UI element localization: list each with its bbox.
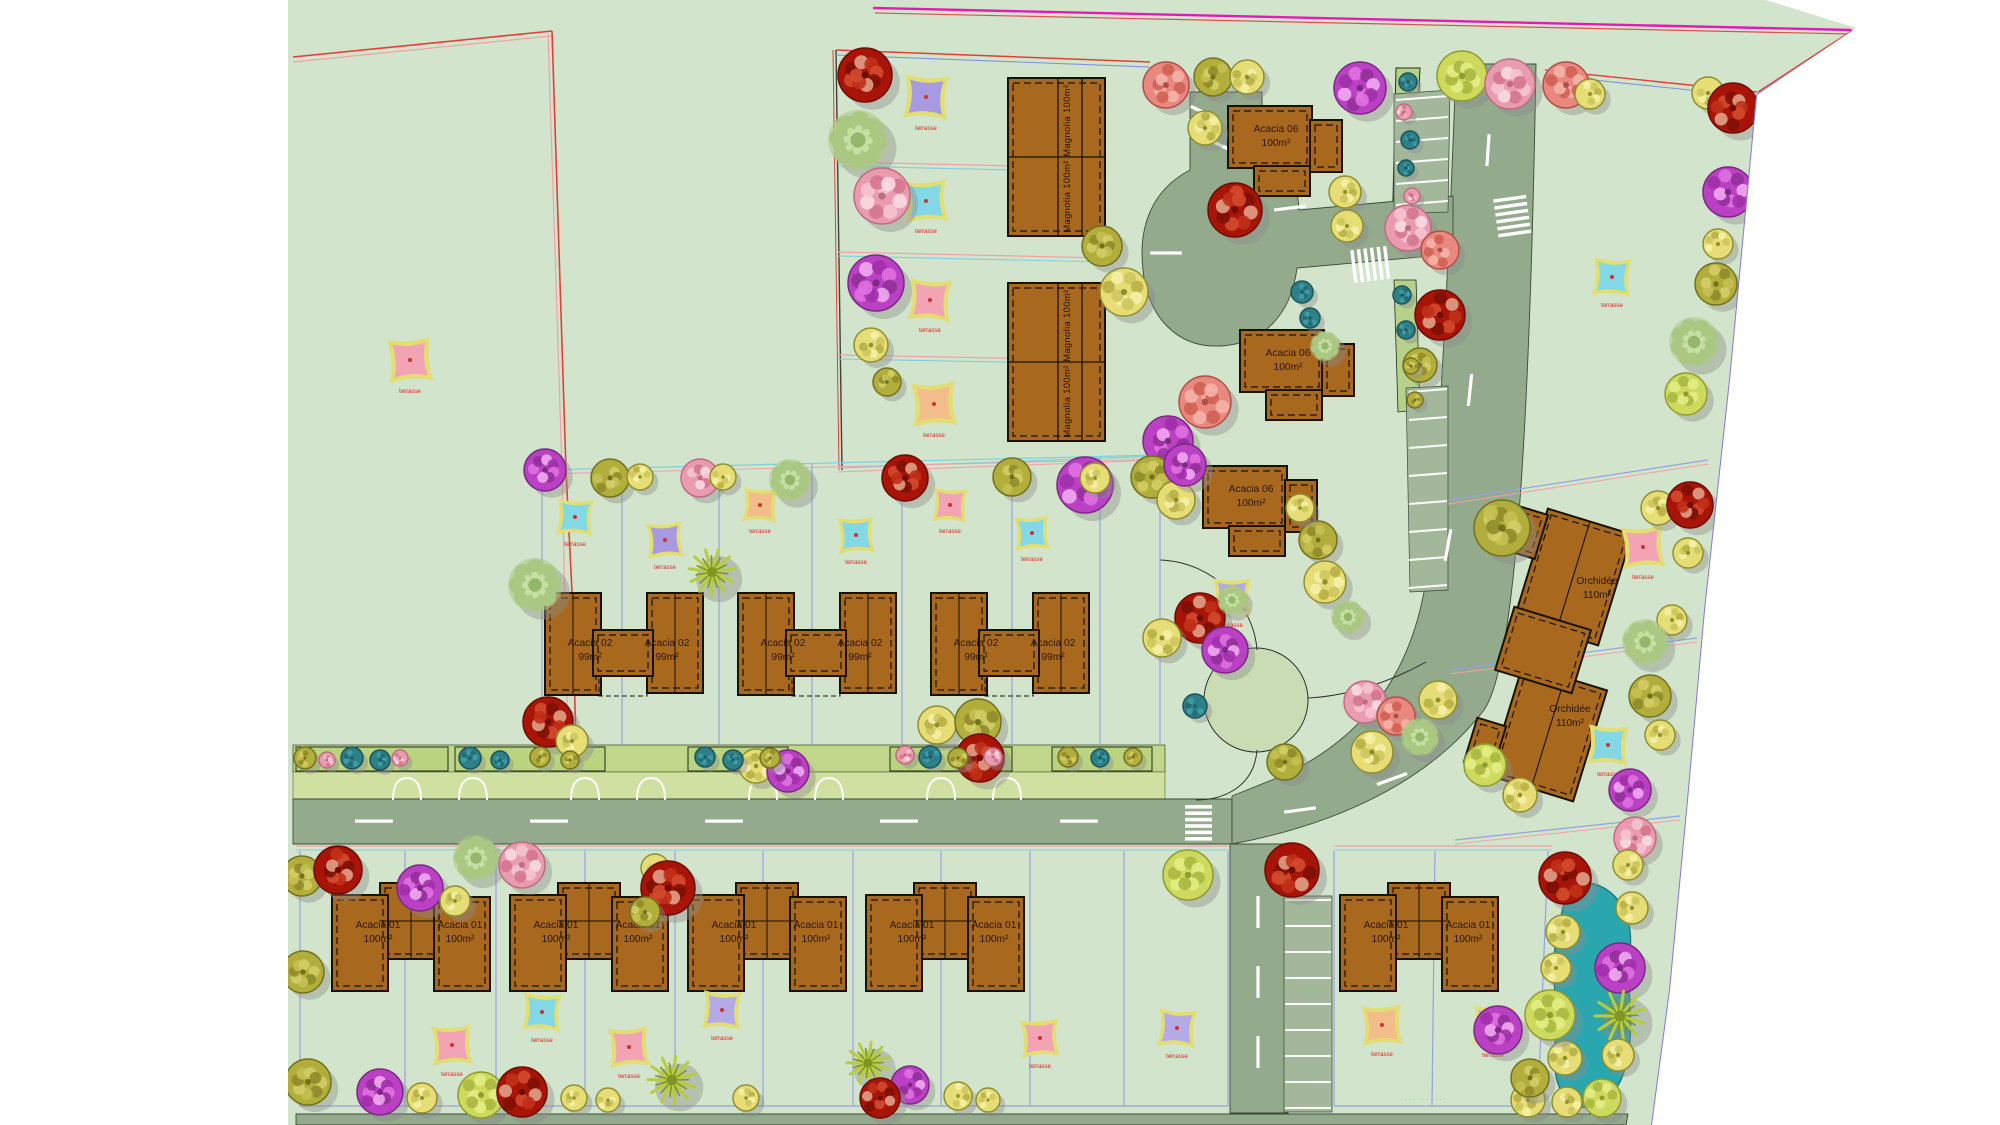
crosswalk-bar <box>1185 811 1212 815</box>
sail-label: terrasse <box>939 529 961 535</box>
sail-label: terrasse <box>564 542 586 548</box>
sail-label: terrasse <box>919 328 941 334</box>
road-dash <box>1256 896 1259 928</box>
building-unit <box>786 630 846 676</box>
shade-sail <box>522 992 562 1032</box>
road-dash <box>1256 966 1259 998</box>
shade-sail <box>903 74 949 120</box>
road-dash <box>530 820 568 823</box>
shade-sail <box>646 521 684 559</box>
sail-label: terrasse <box>654 565 676 571</box>
shade-sail <box>702 990 742 1030</box>
shade-sail <box>1621 525 1666 570</box>
sail-label: terrasse <box>915 229 937 235</box>
road-dash <box>355 820 393 823</box>
shade-sail <box>911 381 957 427</box>
shade-sail <box>742 487 778 523</box>
shade-sail <box>932 487 968 523</box>
magnolia-label: Magnolia 100m² <box>1062 160 1072 232</box>
crosswalk-bar <box>1185 831 1212 835</box>
sail-label: terrasse <box>923 433 945 439</box>
sail-label: terrasse <box>1021 557 1043 563</box>
shade-sail <box>908 278 953 323</box>
sail-label: terrasse <box>399 389 421 395</box>
road-dash <box>880 820 918 823</box>
magnolia-building: Magnolia 100m²Magnolia 100m² <box>1008 78 1105 236</box>
sail-label: terrasse <box>1601 303 1623 309</box>
shade-sail <box>556 498 594 536</box>
sail-label: terrasse <box>531 1038 553 1044</box>
road-dash <box>1150 251 1182 254</box>
site-plan-page: Magnolia 100m²Magnolia 100m²Magnolia 100… <box>0 0 2000 1125</box>
shade-sail <box>1587 724 1629 766</box>
crosswalk-bar <box>1185 824 1212 828</box>
crosswalk-bar <box>1185 805 1212 809</box>
site-plan-drawing: Magnolia 100m²Magnolia 100m²Magnolia 100… <box>0 0 2000 1125</box>
crosswalk-bar <box>1185 837 1212 841</box>
building-unit <box>1240 330 1324 392</box>
magnolia-label: Magnolia 100m² <box>1062 85 1072 157</box>
shade-sail <box>387 337 434 384</box>
shade-sail <box>431 1024 473 1066</box>
shade-sail <box>1592 257 1632 297</box>
sail-label: terrasse <box>1371 1052 1393 1058</box>
magnolia-label: Magnolia 100m² <box>1062 290 1072 362</box>
crosswalk-bar <box>1185 818 1212 822</box>
building-unit <box>979 630 1039 676</box>
sail-label: terrasse <box>1166 1054 1188 1060</box>
road-dash <box>705 820 743 823</box>
magnolia-building: Magnolia 100m²Magnolia 100m² <box>1008 283 1105 441</box>
sail-label: terrasse <box>711 1036 733 1042</box>
driveway-verge-strip <box>293 772 1165 800</box>
road-dash <box>1256 1036 1259 1068</box>
sail-label: terrasse <box>618 1074 640 1080</box>
building-unit <box>1203 466 1287 528</box>
magnolia-label: Magnolia 100m² <box>1062 365 1072 437</box>
shade-sail <box>1014 515 1050 551</box>
shade-sail <box>1157 1008 1198 1049</box>
shade-sail <box>1020 1018 1060 1058</box>
shade-sail <box>608 1026 651 1069</box>
sail-label: terrasse <box>441 1072 463 1078</box>
sail-label: terrasse <box>749 529 771 535</box>
sail-label: terrasse <box>915 126 937 132</box>
sail-label: terrasse <box>1632 575 1654 581</box>
shade-sail <box>837 516 875 554</box>
street-name-label: ·········· <box>1400 1094 1443 1104</box>
sail-label: terrasse <box>1029 1064 1051 1070</box>
building-unit <box>593 630 653 676</box>
road-dash <box>1060 820 1098 823</box>
shade-sail <box>1361 1004 1403 1046</box>
sail-label: terrasse <box>845 560 867 566</box>
building-unit <box>1228 106 1312 168</box>
